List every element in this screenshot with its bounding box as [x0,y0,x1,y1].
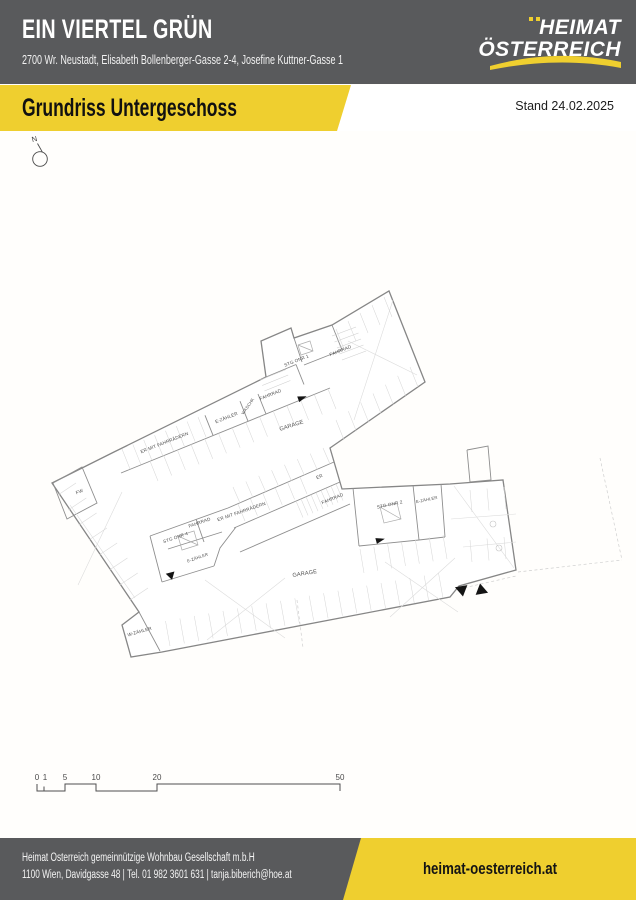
svg-text:0: 0 [35,773,40,782]
north-label: N [31,134,38,144]
building-outline [52,291,516,657]
heimat-oesterreich-logo: HEIMAT ÖSTERREICH [472,6,624,80]
project-header: EIN VIERTEL GRÜN 2700 Wr. Neustadt, Elis… [0,0,636,84]
logo-umlaut-dot [529,17,533,21]
footer-company: Heimat Österreich gemeinnützige Wohnbau … [22,852,255,864]
page: EIN VIERTEL GRÜN 2700 Wr. Neustadt, Elis… [0,0,636,900]
svg-text:10: 10 [92,773,101,782]
plan-title-banner: Grundriss Untergeschoss [0,85,351,131]
svg-text:20: 20 [153,773,162,782]
project-address: 2700 Wr. Neustadt, Elisabeth Bollenberge… [22,53,343,67]
footer: Heimat Österreich gemeinnützige Wohnbau … [0,838,636,900]
banner-row: Grundriss Untergeschoss Stand 24.02.2025 [0,85,636,131]
project-title: EIN VIERTEL GRÜN [22,14,213,45]
floorplan-drawing: N ER MIT FAHRRÄDERNE-ZÄHLERWASCHKFAHRRAD… [0,132,636,804]
north-arrow-icon: N [31,134,48,166]
svg-text:5: 5 [63,773,68,782]
svg-text:1: 1 [43,773,48,782]
logo-text-heimat: HEIMAT [539,16,623,39]
footer-contact: 1100 Wien, Davidgasse 48 | Tel. 01 982 3… [22,869,292,881]
website-text: heimat-oesterreich.at [422,859,556,879]
svg-text:50: 50 [336,773,345,782]
plan-title: Grundriss Untergeschoss [22,94,237,123]
scale-bar: 015102050 [35,773,345,791]
plan-date: Stand 24.02.2025 [515,99,614,113]
website-badge: heimat-oesterreich.at [343,838,636,900]
